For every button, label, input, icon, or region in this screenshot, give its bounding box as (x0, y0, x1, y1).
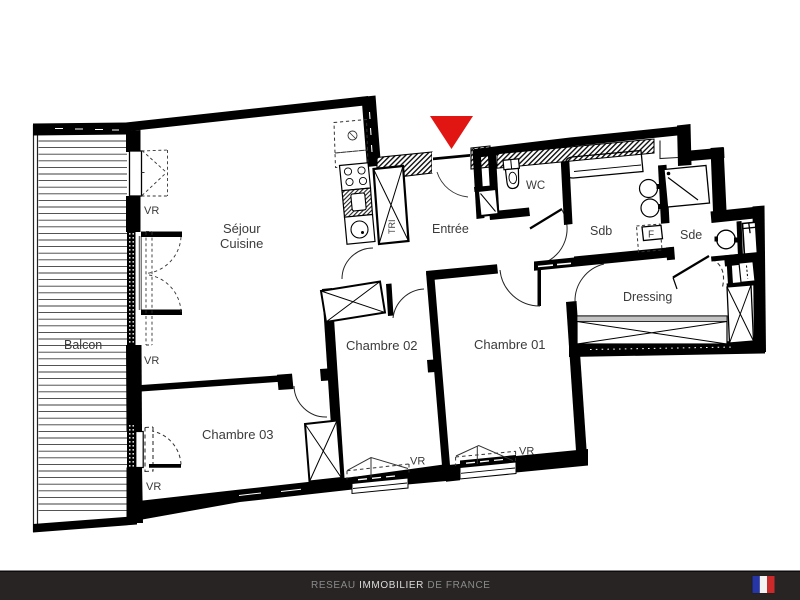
svg-text:Entrée: Entrée (432, 222, 469, 236)
svg-text:Sdb: Sdb (590, 224, 612, 238)
svg-text:TRI: TRI (387, 220, 397, 235)
svg-text:VR: VR (146, 481, 161, 493)
svg-text:Chambre 01: Chambre 01 (474, 337, 546, 352)
svg-text:WC: WC (526, 180, 545, 192)
svg-text:VR: VR (410, 456, 425, 468)
svg-text:Chambre 02: Chambre 02 (346, 338, 418, 353)
svg-text:Dressing: Dressing (623, 290, 672, 304)
svg-text:F: F (648, 230, 654, 241)
svg-text:Sde: Sde (680, 228, 702, 242)
svg-text:Séjour: Séjour (223, 221, 261, 236)
svg-text:RESEAU IMMOBILIER DE FRANCE: RESEAU IMMOBILIER DE FRANCE (311, 580, 491, 591)
svg-text:VR: VR (144, 205, 159, 217)
svg-text:VR: VR (144, 355, 159, 367)
svg-text:Chambre 03: Chambre 03 (202, 427, 274, 442)
svg-text:Cuisine: Cuisine (220, 236, 263, 251)
svg-text:Balcon: Balcon (64, 338, 102, 352)
